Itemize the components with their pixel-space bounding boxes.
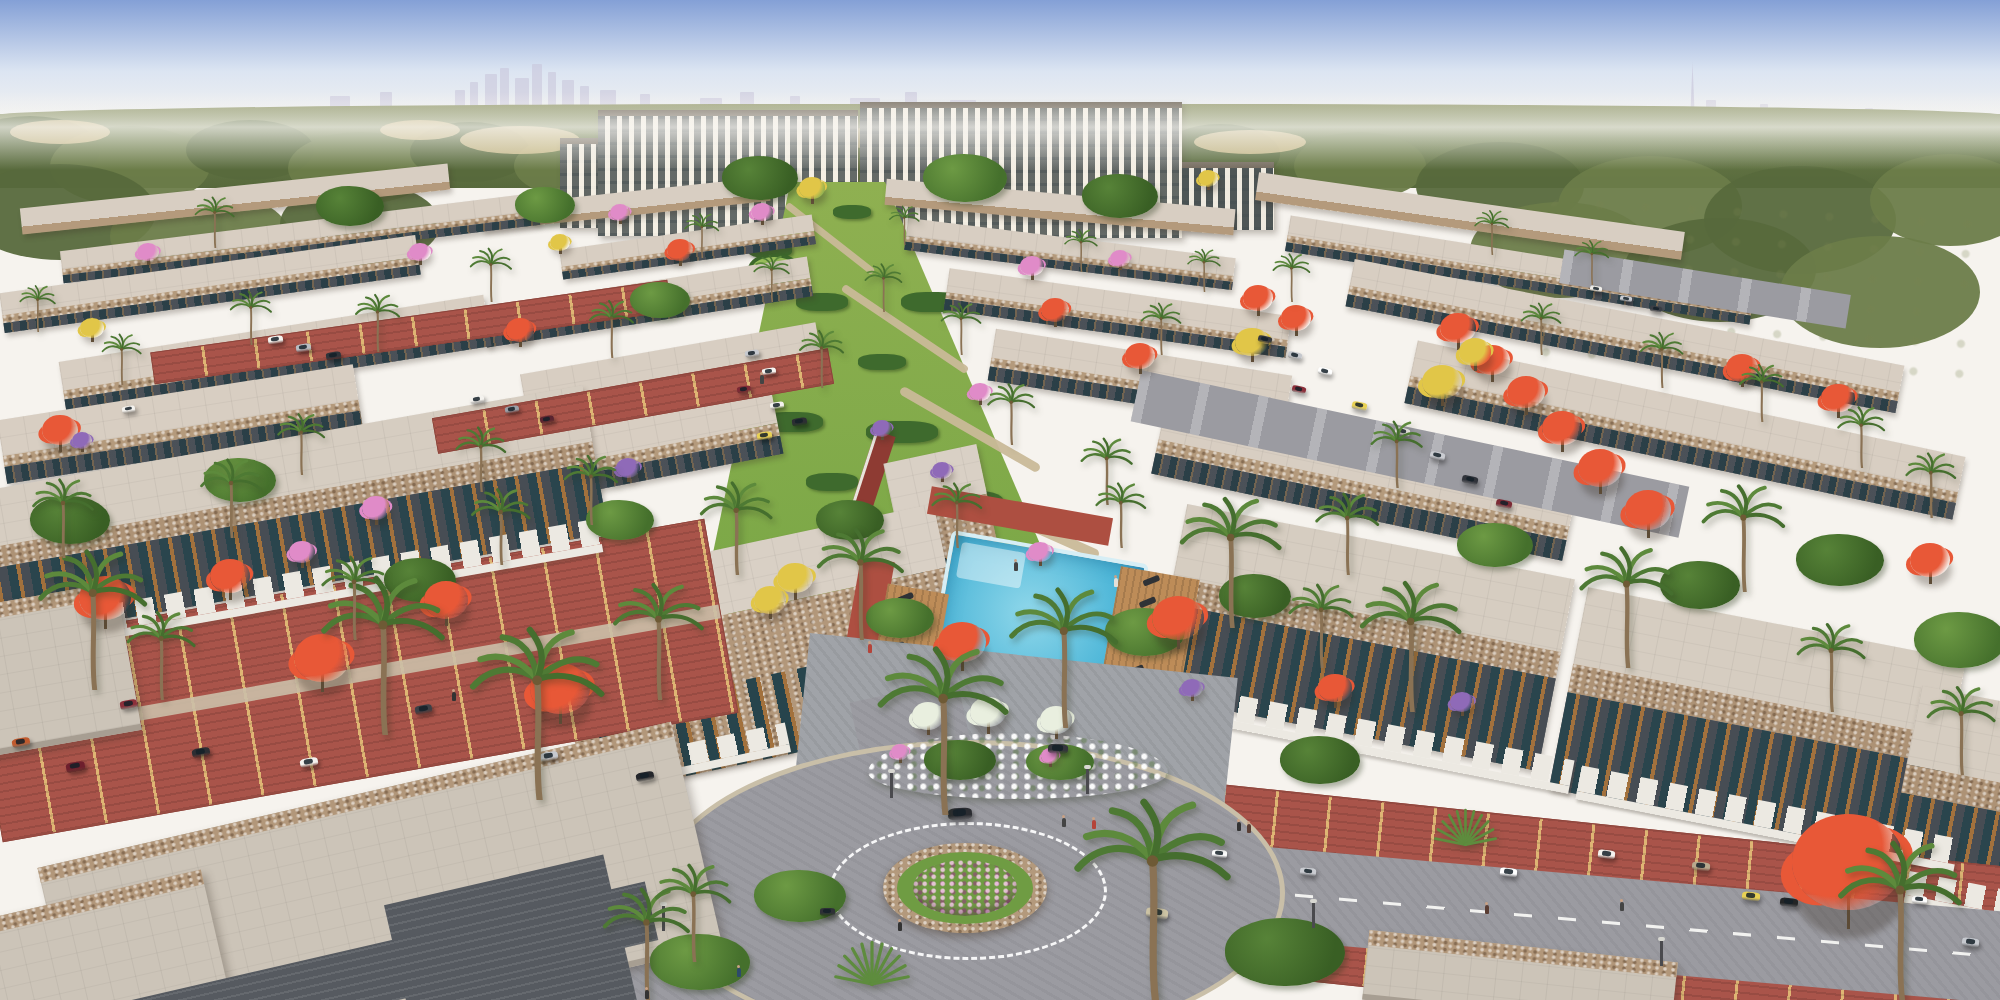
sand-patch (380, 120, 460, 140)
palm-tree (1830, 830, 1975, 1000)
flowering-tree-pink (751, 203, 773, 222)
palm-tree (467, 244, 516, 302)
flowering-tree-pink (362, 496, 390, 520)
palm-tree (1062, 226, 1101, 272)
palm-tree (862, 260, 906, 312)
flowering-tree-pink (1110, 250, 1130, 267)
flowering-tree-pink (289, 541, 315, 563)
tree-canopy-green (722, 156, 798, 200)
flowering-tree-yellow (1422, 365, 1462, 399)
palm-tree (452, 422, 512, 492)
car (1598, 849, 1616, 859)
car-cabin (1784, 899, 1794, 905)
tree-canopy-green (1280, 736, 1360, 784)
palm-tree (1902, 448, 1962, 518)
person (898, 922, 902, 931)
car-cabin (795, 418, 803, 423)
person (645, 990, 649, 999)
car-cabin (639, 772, 649, 778)
skyline-tower (515, 78, 529, 108)
flowering-tree-purple (72, 432, 92, 449)
car (1692, 861, 1711, 872)
person (1092, 820, 1096, 829)
flowering-tree-flame (1910, 543, 1950, 577)
flowering-tree-purple (872, 420, 892, 437)
palm-tree (796, 326, 849, 388)
palm-tree (650, 857, 739, 962)
palm-tree (984, 379, 1040, 445)
palm-tree (1270, 250, 1314, 302)
flowering-tree-flame (1041, 298, 1069, 322)
street-lamp-head (1310, 899, 1317, 903)
flowering-tree-pink (409, 243, 431, 262)
street-lamp-post (1312, 902, 1315, 928)
palm-tree (1834, 402, 1890, 468)
car-cabin (125, 406, 132, 411)
flowering-tree-pink (1028, 542, 1052, 562)
tree-canopy-green (1457, 523, 1533, 567)
tree-canopy-green (1914, 612, 2000, 668)
car-cabin (1355, 402, 1363, 408)
palm-tree (1518, 299, 1566, 355)
car-cabin (1465, 476, 1474, 482)
palm-tree (1423, 758, 1508, 858)
sun-lounger (1142, 574, 1160, 586)
palm-tree (274, 409, 330, 475)
flowering-tree-purple (932, 462, 952, 479)
palm-tree (695, 475, 780, 575)
palm-tree (682, 210, 723, 258)
flowering-tree-pink (610, 204, 630, 221)
car-cabin (1696, 863, 1706, 869)
person (1014, 562, 1018, 571)
person (1247, 824, 1251, 833)
flowering-tree-pink (137, 243, 159, 262)
car (1742, 891, 1761, 902)
tree-canopy-green (630, 282, 690, 318)
car (1317, 367, 1332, 377)
car-cabin (773, 402, 781, 407)
car-cabin (1295, 386, 1303, 391)
skyline-tower (485, 74, 497, 108)
palm-tree (467, 483, 537, 565)
palm-tree (1002, 578, 1130, 728)
car-cabin (1499, 500, 1508, 506)
palm-tree (1173, 488, 1292, 628)
palm-tree (1092, 478, 1152, 548)
street-lamp-head (1084, 765, 1091, 769)
car-cabin (1052, 745, 1063, 751)
palm-tree (227, 287, 276, 345)
flowering-tree-yellow (1198, 170, 1218, 187)
car-cabin (543, 416, 551, 421)
palm-tree (352, 290, 405, 352)
palm-tree (887, 203, 923, 245)
skyline-tower (548, 72, 556, 108)
car-cabin (473, 396, 481, 401)
car-cabin (1303, 869, 1312, 874)
park-hedge (858, 354, 906, 370)
sand-patch (1194, 130, 1306, 154)
person (452, 692, 456, 701)
car (1300, 867, 1317, 877)
palm-tree (586, 296, 639, 358)
person (1114, 578, 1118, 587)
car-cabin (1602, 851, 1611, 857)
car-cabin (70, 762, 81, 769)
car-cabin (1623, 296, 1630, 300)
tree-canopy-green (923, 154, 1007, 202)
sun-lounger (1138, 597, 1156, 609)
palm-tree (811, 520, 913, 640)
person (1237, 822, 1241, 831)
palm-tree (1311, 487, 1386, 575)
car-cabin (299, 344, 307, 349)
flowering-tree-flame (1542, 411, 1582, 445)
person (1062, 818, 1066, 827)
flowering-tree-flame (1507, 376, 1545, 408)
palm-tree (1792, 617, 1873, 712)
car-cabin (1653, 306, 1660, 310)
foreground-villa-roof (0, 869, 232, 1000)
park-hedge (806, 473, 858, 491)
aerial-development-render (0, 0, 2000, 1000)
car-cabin (303, 758, 313, 764)
flowering-tree-yellow (1459, 338, 1491, 365)
car (1287, 351, 1302, 361)
palm-tree (122, 605, 203, 700)
palm-tree (928, 478, 988, 548)
palm-tree (1573, 538, 1684, 668)
street-lamp-post (1660, 940, 1663, 966)
flowering-tree-pink (1020, 256, 1044, 276)
flowering-tree-flame (1318, 674, 1352, 703)
car-cabin (740, 386, 748, 391)
person (868, 644, 872, 653)
palm-tree (1472, 207, 1513, 255)
tree-canopy-green (316, 186, 384, 226)
car (1500, 867, 1518, 877)
car-cabin (1746, 893, 1756, 899)
palm-tree (461, 615, 618, 800)
car-cabin (1261, 336, 1269, 341)
tree-canopy-green (515, 187, 575, 223)
car-cabin (765, 368, 773, 373)
palm-tree (317, 550, 394, 640)
car-cabin (1321, 368, 1329, 373)
car-cabin (195, 748, 205, 754)
flowering-tree-flame (1578, 449, 1622, 486)
palm-tree (607, 575, 713, 700)
palm-tree (1064, 785, 1247, 1000)
palm-tree (938, 299, 986, 355)
car-cabin (1433, 452, 1441, 458)
palm-tree (751, 252, 794, 302)
car-cabin (1593, 286, 1600, 290)
palm-tree (1736, 360, 1789, 422)
car-cabin (123, 700, 133, 706)
flowering-tree-yellow (754, 586, 786, 613)
palm-tree (1572, 237, 1613, 285)
person (760, 375, 764, 384)
car-cabin (760, 432, 768, 437)
car (1048, 743, 1068, 754)
palm-tree (17, 282, 60, 332)
palm-tree (1637, 328, 1688, 388)
roundabout-flower-mound (913, 860, 1017, 916)
palm-tree (1138, 299, 1186, 355)
palm-tree (1922, 680, 2000, 775)
skyline-tower (500, 68, 509, 108)
car (1291, 385, 1306, 395)
car-cabin (329, 352, 337, 357)
car-cabin (508, 406, 516, 411)
palm-tree (1696, 477, 1794, 592)
tree-canopy-green (1796, 534, 1884, 586)
car-cabin (1291, 352, 1299, 357)
flowering-tree-purple (1181, 679, 1203, 698)
person (1485, 905, 1489, 914)
flowering-tree-flame (1625, 490, 1671, 529)
palm-tree (1284, 578, 1361, 668)
palm-tree (1185, 246, 1224, 292)
car-cabin (1504, 869, 1513, 875)
roof-edge (1362, 994, 1671, 1000)
palm-tree (821, 880, 923, 1000)
palm-tree (869, 635, 1022, 815)
palm-tree (1353, 572, 1472, 712)
park-hedge (833, 205, 871, 219)
flowering-tree-yellow (777, 563, 813, 594)
flowering-tree-flame (1281, 305, 1311, 331)
flowering-tree-yellow (550, 234, 570, 251)
street-lamp-head (1658, 937, 1665, 941)
car (1780, 897, 1799, 908)
car (1351, 401, 1367, 411)
flowering-tree-flame (1243, 285, 1273, 311)
palm-tree (192, 193, 239, 248)
skyline-tower (532, 64, 542, 108)
palm-tree (1367, 416, 1428, 488)
palm-tree (28, 473, 100, 558)
tree-canopy-green (1082, 174, 1158, 218)
person (737, 968, 741, 977)
palm-tree (99, 330, 146, 385)
palm-tree (196, 453, 268, 538)
palm-tree (560, 450, 624, 525)
flowering-tree-yellow (799, 177, 825, 199)
flowering-tree-flame (210, 559, 250, 593)
person (1620, 902, 1624, 911)
flowering-tree-flame (506, 318, 534, 342)
sand-patch (10, 120, 110, 144)
car-cabin (748, 350, 756, 355)
car-cabin (15, 738, 25, 744)
